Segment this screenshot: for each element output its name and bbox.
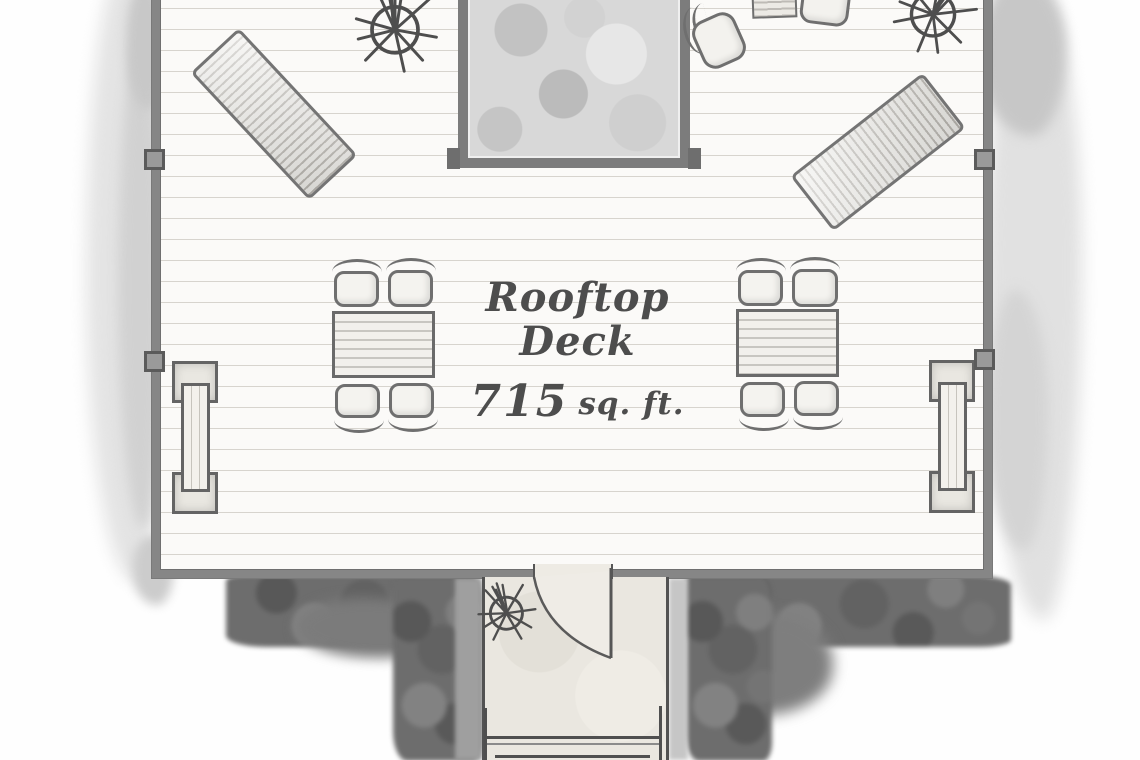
dining-chair	[740, 382, 785, 417]
bistro-side-table	[752, 0, 798, 19]
skylight-flange-right	[688, 148, 701, 169]
bench-right	[929, 360, 975, 513]
wall-post	[144, 351, 165, 372]
bench-seat	[938, 382, 967, 491]
dining-chair	[792, 269, 838, 307]
dining-chair	[794, 381, 839, 416]
room-label-line2: Deck	[445, 320, 710, 364]
bench-left	[172, 361, 218, 514]
stair-step-line	[495, 755, 650, 758]
room-area-unit: sq. ft.	[578, 386, 684, 422]
stair-rail	[659, 706, 662, 760]
stair-step-line	[487, 736, 659, 739]
skylight-flange-left	[447, 148, 460, 169]
wall-post	[144, 149, 165, 170]
room-label: Rooftop Deck 715sq. ft.	[445, 276, 710, 427]
stair-rail	[484, 708, 487, 760]
dining-chair	[335, 384, 380, 418]
stair-step-line	[487, 743, 659, 745]
rooftop-deck-floor-plan: Rooftop Deck 715sq. ft.	[0, 0, 1140, 760]
door-swing-icon	[529, 568, 619, 664]
bench-seat	[181, 383, 210, 492]
dining-table-right	[736, 309, 839, 377]
dining-chair	[334, 271, 379, 307]
room-area-value: 715	[470, 376, 568, 427]
dining-chair	[388, 270, 433, 307]
dining-chair	[738, 270, 783, 306]
wall-post	[974, 349, 995, 370]
dining-table-left	[332, 311, 435, 378]
plant-icon	[349, 0, 441, 74]
watercolor-wash-right-mid	[988, 290, 1048, 550]
roof-shadow-column-right	[685, 575, 772, 760]
room-label-line1: Rooftop	[445, 276, 710, 320]
wall-post	[974, 149, 995, 170]
room-area: 715sq. ft.	[445, 376, 710, 427]
roof-shadow-strip-right	[669, 578, 688, 760]
skylight-opening	[458, 0, 690, 168]
dining-chair	[389, 383, 434, 418]
